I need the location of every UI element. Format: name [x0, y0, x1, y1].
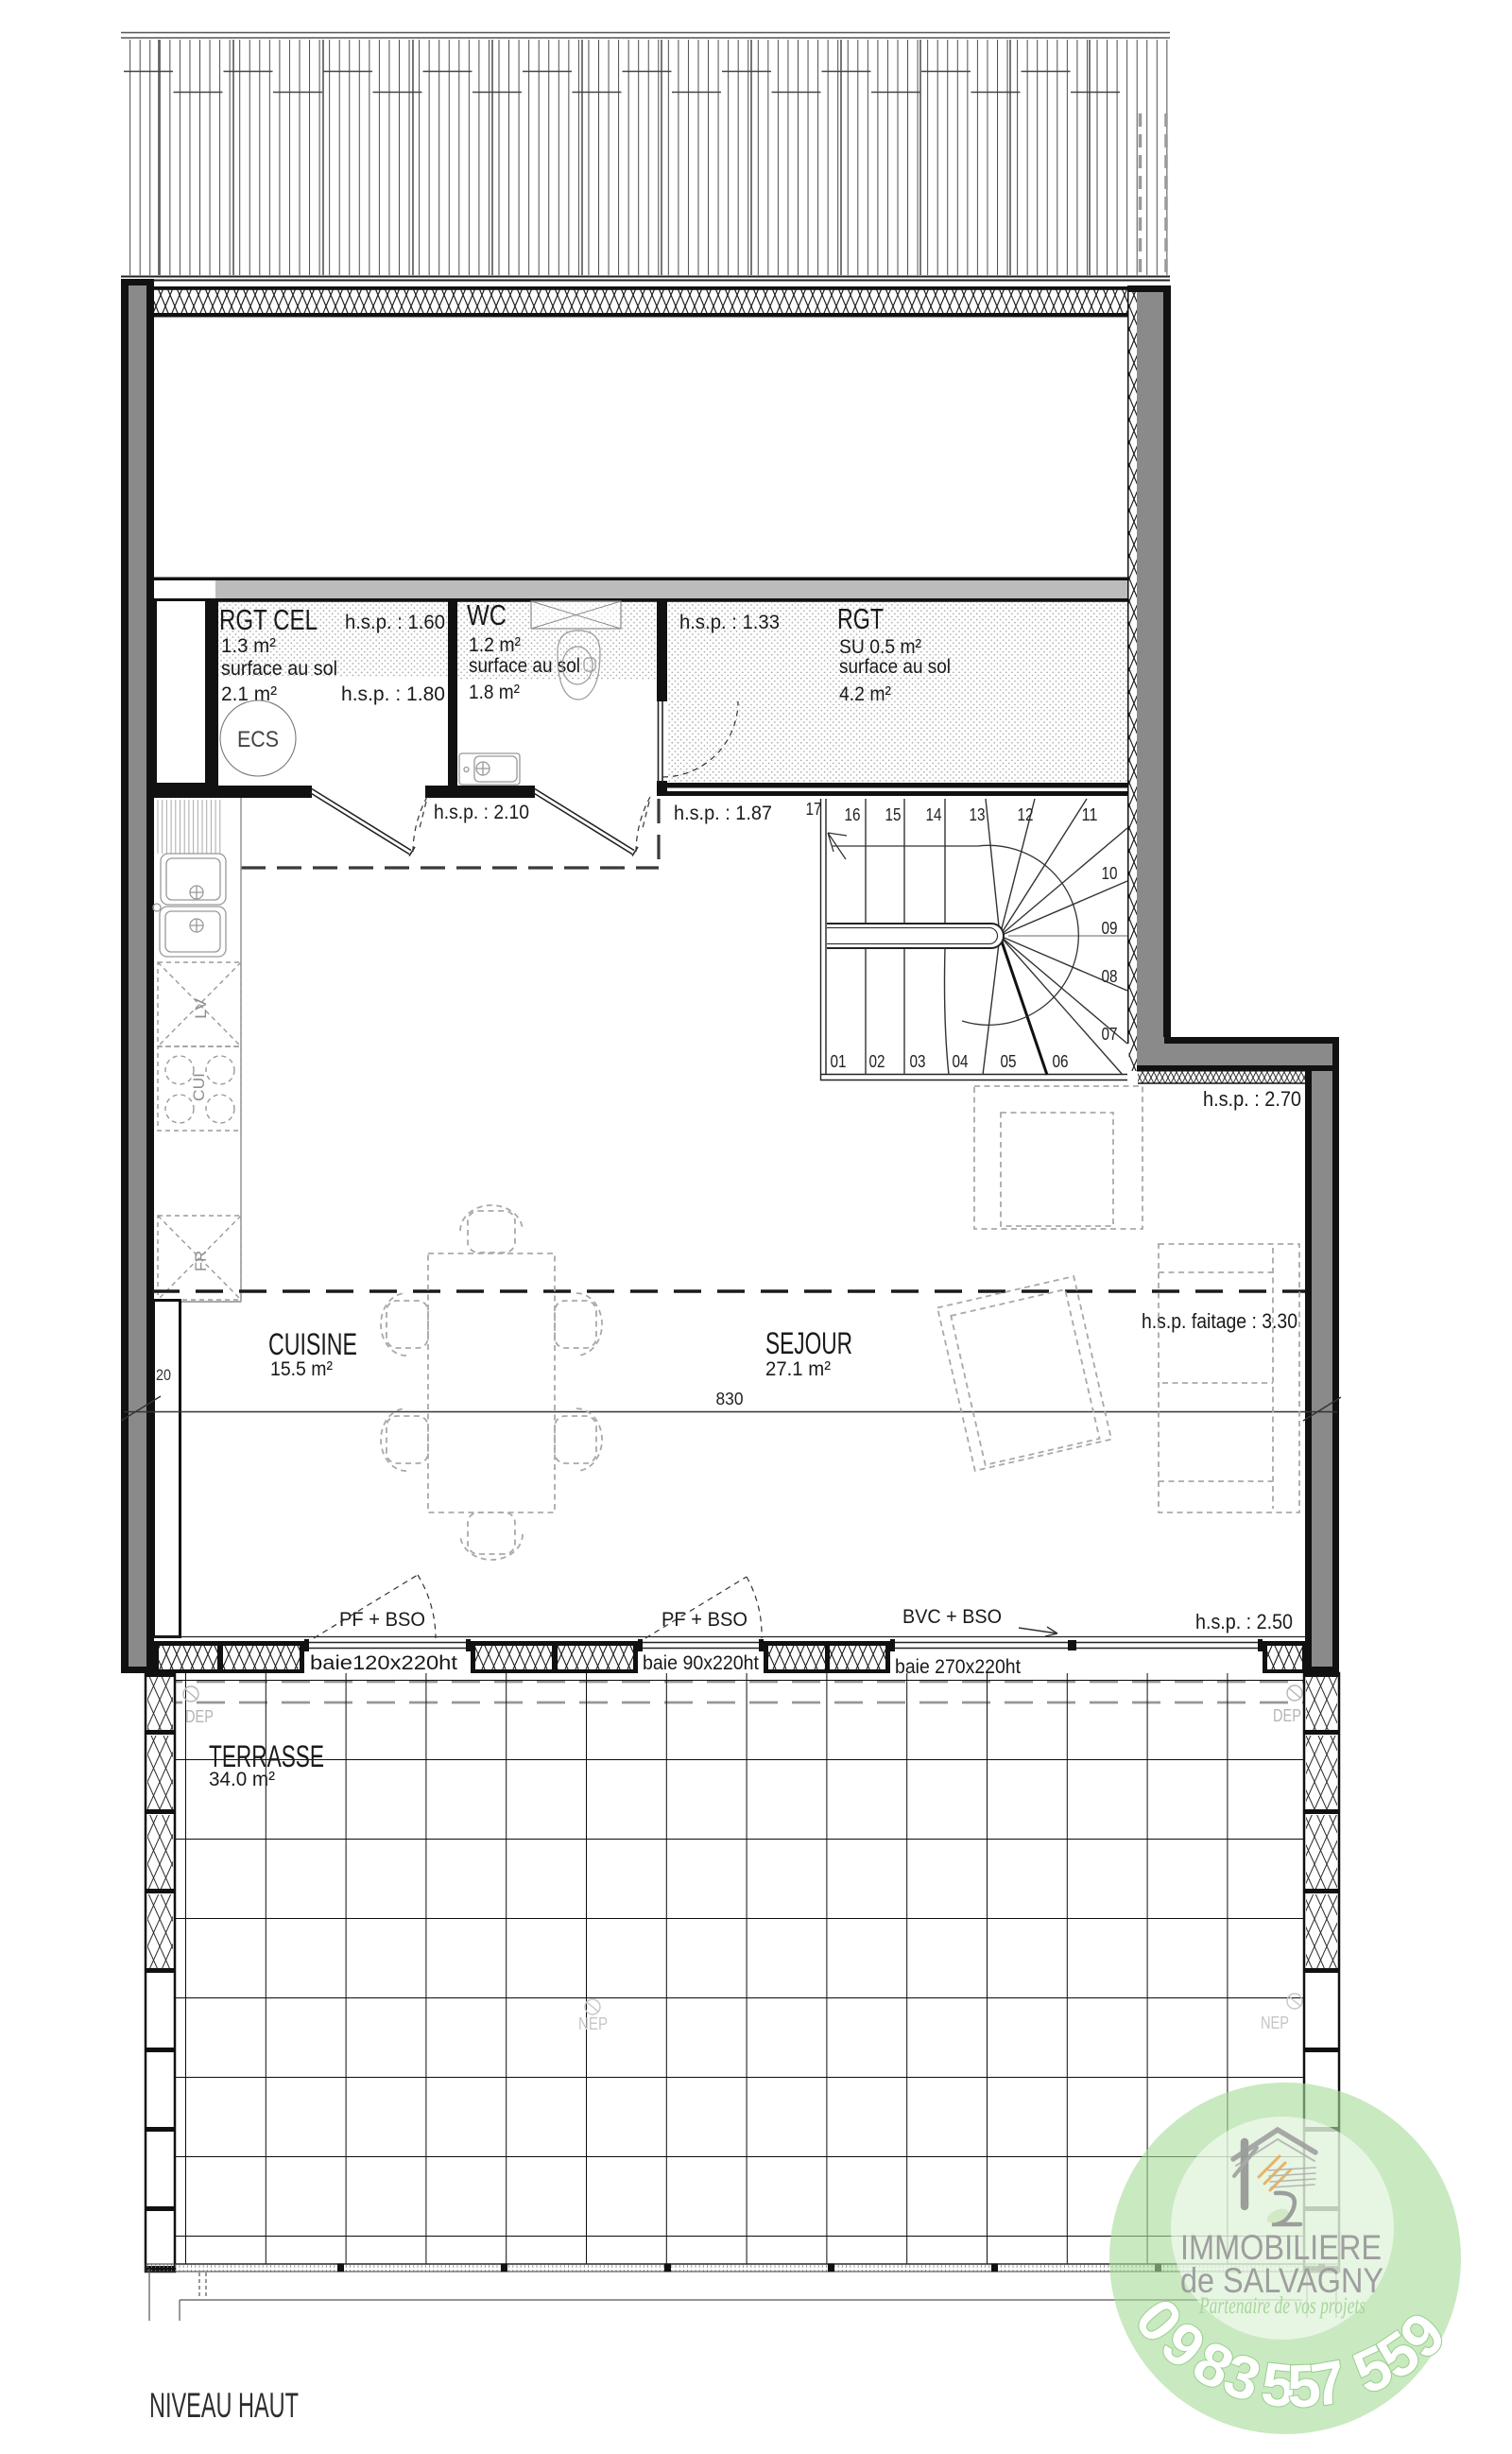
svg-text:DEP: DEP [185, 1707, 214, 1726]
svg-text:4.2 m²: 4.2 m² [839, 683, 891, 705]
svg-text:BVC + BSO: BVC + BSO [902, 1606, 1002, 1628]
svg-text:13: 13 [970, 805, 986, 824]
svg-text:34.0 m²: 34.0 m² [209, 1769, 275, 1790]
svg-text:ECS: ECS [237, 727, 279, 752]
svg-text:11: 11 [1082, 805, 1098, 824]
svg-text:SU 0.5 m²: SU 0.5 m² [839, 636, 921, 658]
svg-text:RGT: RGT [837, 602, 884, 635]
svg-text:17: 17 [806, 800, 822, 819]
svg-text:WC: WC [467, 598, 507, 631]
svg-text:830: 830 [716, 1390, 744, 1408]
svg-text:20: 20 [156, 1366, 171, 1384]
svg-text:baie120x220ht: baie120x220ht [310, 1652, 457, 1674]
svg-text:NIVEAU HAUT: NIVEAU HAUT [149, 2386, 299, 2425]
svg-text:27.1 m²: 27.1 m² [765, 1358, 831, 1380]
svg-text:RGT CEL: RGT CEL [219, 603, 318, 636]
svg-text:06: 06 [1053, 1052, 1069, 1071]
svg-text:12: 12 [1018, 805, 1034, 824]
svg-text:surface au sol: surface au sol [221, 658, 337, 680]
svg-text:02: 02 [869, 1052, 885, 1071]
svg-text:1.3 m²: 1.3 m² [221, 635, 276, 657]
svg-text:05: 05 [1001, 1052, 1017, 1071]
svg-text:h.s.p. : 1.60: h.s.p. : 1.60 [345, 612, 445, 633]
svg-text:15: 15 [885, 805, 902, 824]
svg-text:Partenaire de vos projets: Partenaire de vos projets [1198, 2293, 1366, 2319]
svg-text:09: 09 [1102, 919, 1118, 938]
svg-text:DEP: DEP [1273, 1706, 1301, 1725]
svg-text:15.5 m²: 15.5 m² [270, 1358, 333, 1380]
svg-text:08: 08 [1102, 967, 1118, 986]
svg-text:07: 07 [1102, 1025, 1118, 1044]
svg-text:03: 03 [910, 1052, 926, 1071]
svg-text:1.2 m²: 1.2 m² [469, 634, 521, 656]
svg-text:baie 90x220ht: baie 90x220ht [643, 1652, 759, 1674]
svg-text:LV: LV [192, 997, 210, 1019]
svg-text:PF + BSO: PF + BSO [339, 1609, 425, 1631]
svg-text:h.s.p. : 1.33: h.s.p. : 1.33 [679, 612, 780, 633]
svg-text:NEP: NEP [578, 2014, 608, 2033]
svg-text:SEJOUR: SEJOUR [765, 1326, 852, 1360]
svg-text:CUISINE: CUISINE [268, 1327, 357, 1361]
svg-text:1.8 m²: 1.8 m² [469, 682, 520, 703]
svg-text:CUI: CUI [190, 1073, 208, 1101]
svg-text:h.s.p. : 1.80: h.s.p. : 1.80 [341, 683, 445, 705]
svg-text:10: 10 [1102, 864, 1118, 883]
svg-text:h.s.p. : 2.10: h.s.p. : 2.10 [434, 802, 529, 823]
svg-text:01: 01 [831, 1052, 847, 1071]
svg-text:16: 16 [845, 805, 861, 824]
svg-text:FR: FR [192, 1251, 210, 1271]
svg-text:h.s.p. : 2.70: h.s.p. : 2.70 [1203, 1087, 1301, 1111]
svg-text:h.s.p. faitage : 3.30: h.s.p. faitage : 3.30 [1142, 1309, 1297, 1333]
svg-text:PF + BSO: PF + BSO [661, 1609, 747, 1631]
svg-text:surface au sol: surface au sol [839, 656, 951, 678]
svg-text:h.s.p. : 1.87: h.s.p. : 1.87 [674, 803, 772, 824]
svg-text:NEP: NEP [1261, 2013, 1289, 2032]
svg-text:14: 14 [926, 805, 942, 824]
svg-text:h.s.p. : 2.50: h.s.p. : 2.50 [1195, 1610, 1293, 1633]
svg-text:04: 04 [953, 1052, 969, 1071]
